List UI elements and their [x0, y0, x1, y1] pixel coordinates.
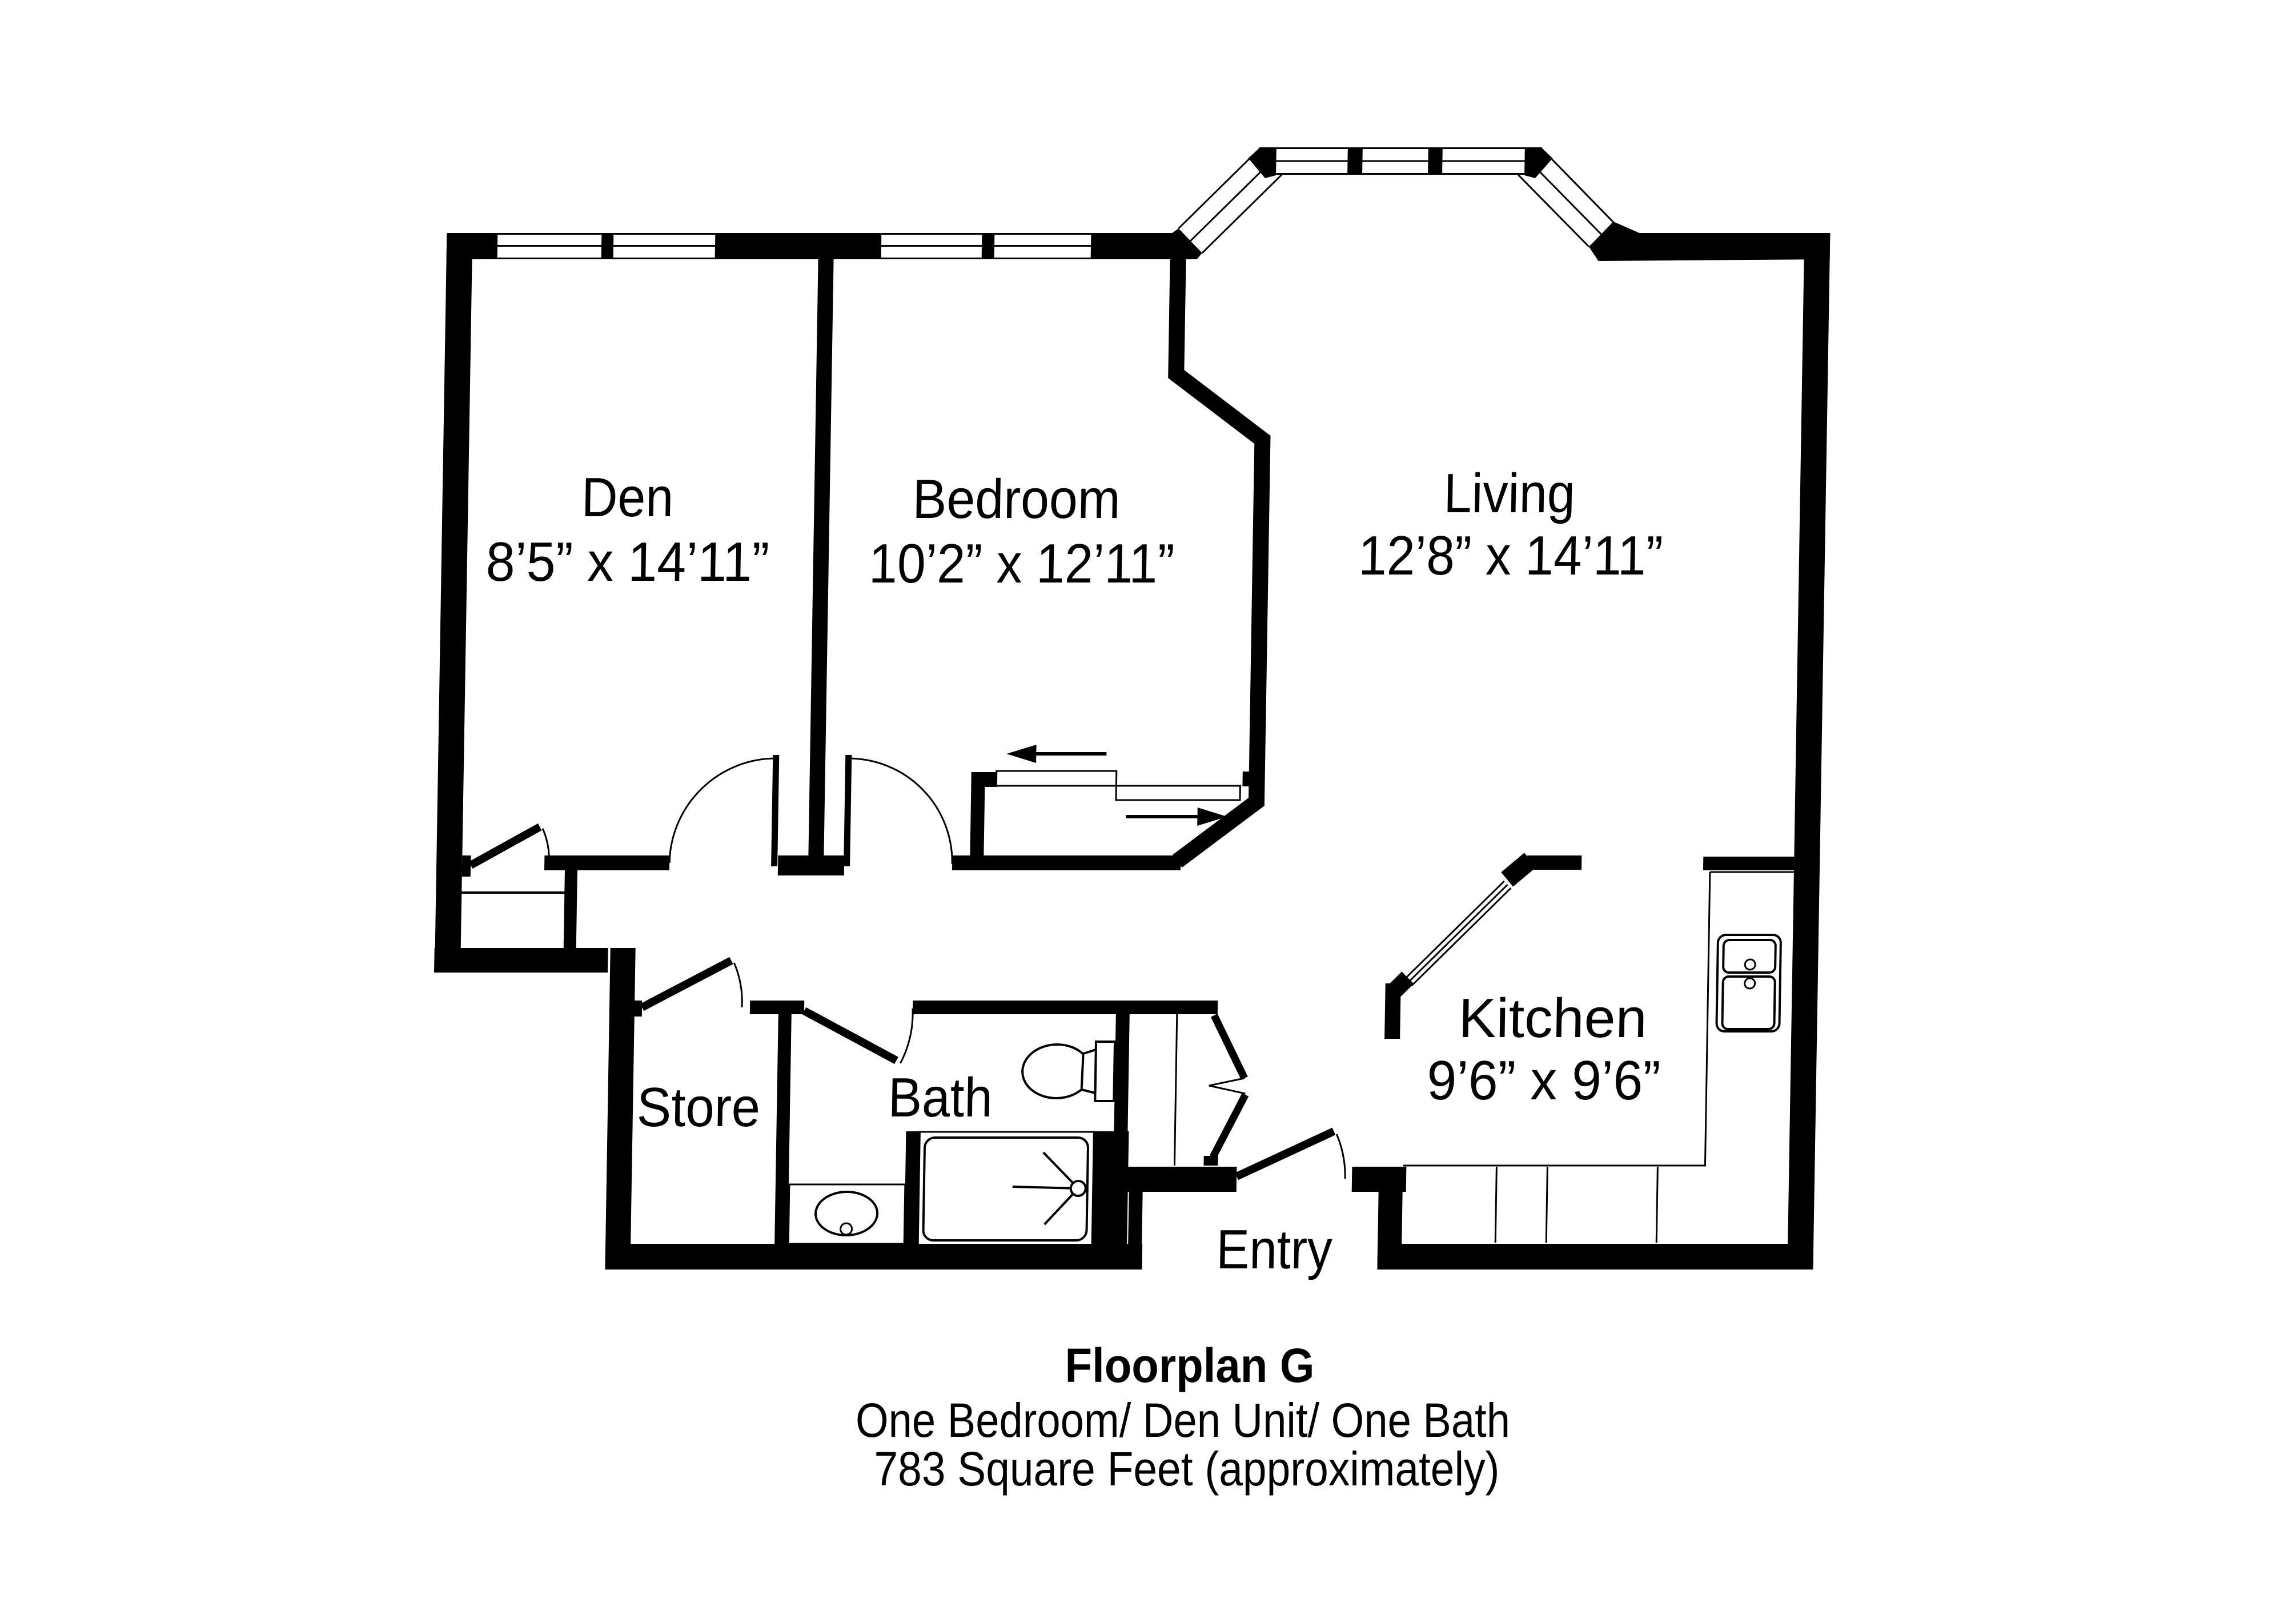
svg-text:Living: Living [1443, 462, 1576, 524]
svg-text:Store: Store [636, 1076, 761, 1138]
svg-text:8’5” x 14’11”: 8’5” x 14’11” [485, 531, 770, 593]
svg-text:Bath: Bath [888, 1066, 993, 1128]
svg-text:Den: Den [581, 466, 674, 528]
svg-text:9’6” x 9’6”: 9’6” x 9’6” [1427, 1049, 1661, 1111]
svg-text:12’8” x 14’11”: 12’8” x 14’11” [1358, 524, 1664, 586]
svg-text:Kitchen: Kitchen [1458, 987, 1648, 1049]
svg-text:Entry: Entry [1216, 1218, 1333, 1280]
svg-text:783 Square Feet (approximately: 783 Square Feet (approximately) [874, 1442, 1500, 1496]
svg-text:Floorplan G: Floorplan G [1065, 1339, 1315, 1392]
svg-text:One Bedroom/ Den Unit/ One Bat: One Bedroom/ Den Unit/ One Bath [856, 1393, 1510, 1447]
svg-text:Bedroom: Bedroom [912, 468, 1121, 530]
svg-text:10’2” x 12’11”: 10’2” x 12’11” [868, 532, 1175, 594]
